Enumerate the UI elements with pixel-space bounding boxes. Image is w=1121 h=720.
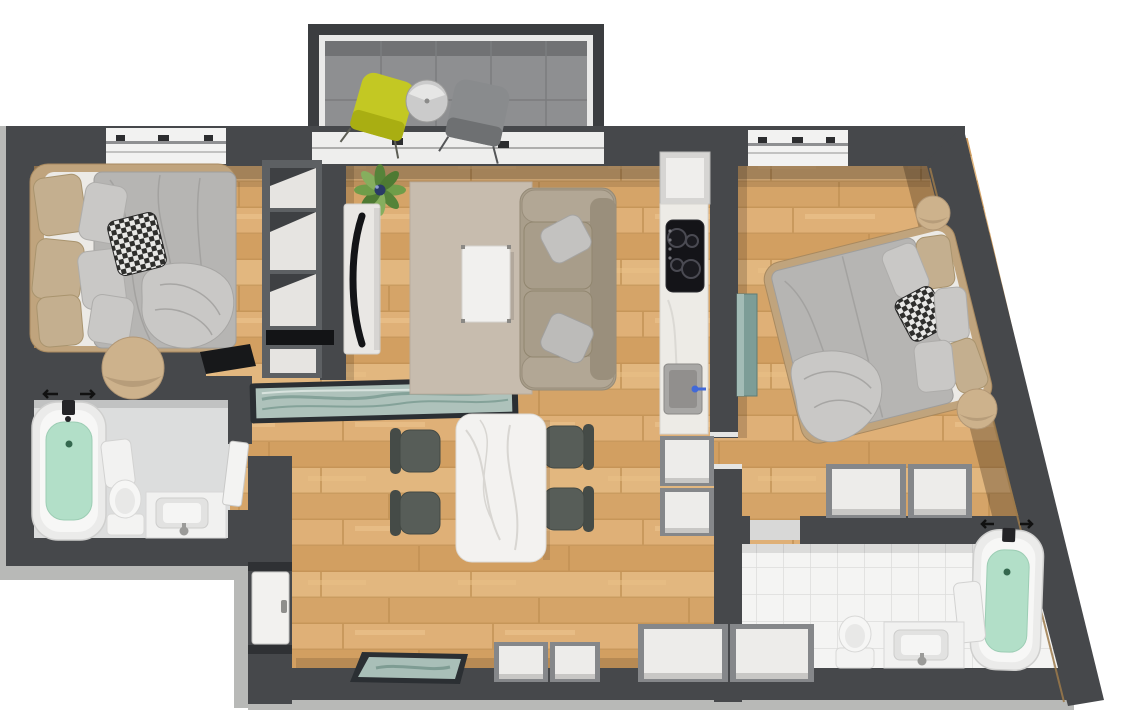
- table-foot: [461, 245, 465, 249]
- toilet-seat: [845, 624, 865, 648]
- sideboard-shadow: [374, 208, 380, 350]
- bathtub-faucet: [1002, 528, 1015, 542]
- toilet-seat: [115, 488, 135, 514]
- chair-back: [583, 424, 594, 470]
- bin-inner: [555, 646, 595, 674]
- bin-shadow: [644, 673, 722, 679]
- bedroom2-door-jamb: [714, 464, 742, 469]
- bin-shadow: [832, 509, 900, 515]
- bin-inner: [665, 492, 709, 528]
- bin-inner: [736, 629, 808, 673]
- wall-bathroom1-bottom: [6, 538, 252, 566]
- outside-top-right: [604, 0, 1121, 126]
- pouf-top: [102, 337, 164, 399]
- burner: [686, 235, 698, 247]
- sofa-backrest: [590, 198, 616, 380]
- wall-bathroom2-top-a: [714, 516, 750, 544]
- chair-seat: [400, 492, 440, 534]
- burner: [682, 260, 700, 278]
- dining-chair: [390, 490, 440, 536]
- cooktop-knob: [668, 238, 671, 241]
- bed-1: [30, 164, 236, 352]
- window-handle: [116, 135, 125, 141]
- bathtub-faucet: [62, 400, 75, 415]
- window-handle: [792, 137, 803, 143]
- balcony-round-table: [406, 80, 448, 122]
- table-foot: [507, 245, 511, 249]
- pillow-beige: [31, 238, 85, 303]
- entrance-doormat: [350, 652, 468, 684]
- window-handle: [204, 135, 213, 141]
- coffee-table: [461, 245, 514, 323]
- sink-faucet-stem: [920, 653, 924, 661]
- wardrobe-shelf: [270, 349, 316, 373]
- window-handle: [758, 137, 767, 143]
- storage-bin: [730, 624, 814, 682]
- wall-kitchen: [710, 126, 738, 438]
- window-handle: [158, 135, 169, 141]
- bathroom2-door-threshold: [750, 520, 800, 540]
- pouf-bedroom1: [102, 337, 164, 399]
- chair-back: [390, 428, 401, 474]
- sink-faucet-blue-base: [692, 386, 699, 393]
- storage-bin: [638, 624, 728, 682]
- dining-chair: [390, 428, 440, 474]
- window-glass-line: [748, 152, 848, 154]
- bathtub-drain: [1004, 569, 1011, 576]
- storage-bin: [494, 642, 548, 682]
- window-sill: [106, 128, 226, 164]
- faucet-spout: [65, 416, 71, 422]
- tv-sideboard: [344, 204, 380, 354]
- appliance-top: [666, 158, 704, 198]
- outside-above-balcony: [308, 0, 604, 24]
- chair-back: [390, 490, 401, 536]
- bin-shadow: [736, 673, 808, 679]
- bedside-stool: [957, 389, 997, 429]
- stool-top: [957, 389, 997, 429]
- bin-shadow: [665, 528, 709, 533]
- bedroom2-door-jamb: [710, 432, 738, 437]
- bin-inner: [644, 629, 722, 673]
- bin-inner: [499, 646, 543, 674]
- chair-seat: [400, 430, 440, 472]
- window-bedroom2: [748, 130, 848, 166]
- storage-bin: [550, 642, 600, 682]
- table-foot: [461, 319, 465, 323]
- window-bedroom1: [106, 128, 226, 164]
- sink-basin-inner: [163, 503, 201, 523]
- cooktop-knob: [668, 256, 671, 259]
- dining-chair: [544, 424, 594, 470]
- bin-inner: [832, 469, 900, 509]
- sink-faucet-stem: [182, 523, 186, 531]
- exterior-edge-entry: [234, 558, 250, 708]
- pillow-gray: [933, 286, 970, 343]
- wardrobe-shelf-black: [266, 330, 334, 345]
- outside-bottom-left: [0, 580, 234, 720]
- bathtub-drain: [66, 441, 73, 448]
- floor-plan-canvas: [0, 0, 1121, 720]
- teal-cabinet-highlight: [737, 294, 744, 396]
- door-frame: [248, 645, 292, 654]
- door-track-line: [312, 147, 604, 149]
- window-handle: [826, 137, 835, 143]
- cooktop-knob: [668, 229, 671, 232]
- floor-plan-image: [0, 0, 1121, 720]
- outside-top-left: [0, 0, 308, 126]
- bedside-stool: [916, 196, 950, 230]
- window-glass-line: [106, 141, 226, 144]
- storage-bin: [908, 464, 972, 518]
- pillow-gray: [913, 339, 956, 393]
- plant-center-dot: [375, 185, 379, 189]
- bathtub-water: [984, 549, 1030, 652]
- bin-shadow: [665, 478, 709, 483]
- wall-bathroom1-right-upper: [228, 400, 252, 444]
- cooktop-knob: [668, 247, 671, 250]
- table-center: [425, 99, 430, 104]
- pillow-beige: [36, 294, 84, 348]
- balcony-floor-shadow: [325, 41, 587, 56]
- bin-inner: [914, 469, 966, 509]
- sofa: [520, 188, 616, 390]
- bin-shadow: [499, 674, 543, 679]
- entrance-door: [248, 562, 292, 654]
- storage-bin: [660, 436, 714, 486]
- table-top: [462, 246, 510, 322]
- window-sill: [748, 130, 848, 166]
- storage-bin: [826, 464, 906, 518]
- table-foot: [507, 319, 511, 323]
- window-glass-line: [748, 143, 848, 146]
- storage-bin: [660, 488, 714, 536]
- bin-shadow: [914, 509, 966, 515]
- dining-chair: [544, 486, 594, 532]
- bin-inner: [665, 440, 709, 478]
- chair-back: [583, 486, 594, 532]
- bathtub-water: [46, 422, 92, 520]
- outside-bottom: [0, 712, 1121, 720]
- stool-top: [916, 196, 950, 230]
- bin-shadow: [555, 674, 595, 679]
- door-frame: [248, 562, 292, 571]
- window-glass-line: [106, 151, 226, 153]
- door-handle: [281, 600, 287, 613]
- sink-basin-inner: [901, 635, 941, 655]
